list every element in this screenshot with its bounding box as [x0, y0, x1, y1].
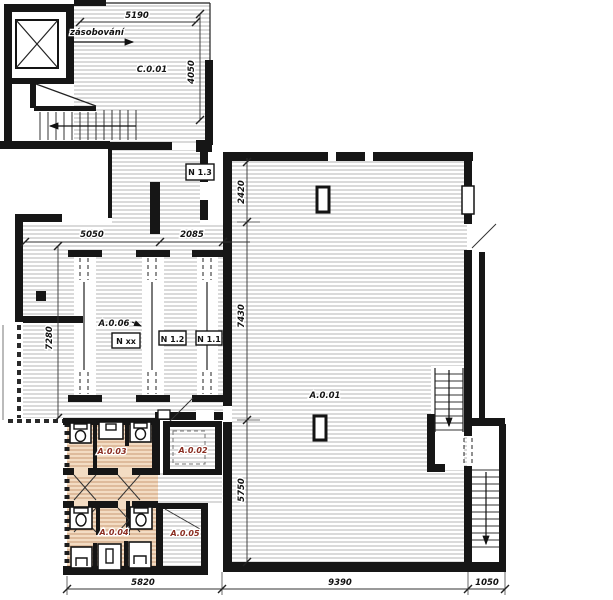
room-label-a006: A.0.06 — [98, 319, 130, 329]
dim-4050: 4050 — [187, 60, 197, 85]
floor-plan: 5190 4050 5050 2085 7280 2420 7430 5750 … — [0, 0, 613, 600]
wall-niche — [462, 186, 474, 214]
room-label-c001: C.0.01 — [137, 65, 167, 75]
dim-2420: 2420 — [237, 180, 247, 204]
dim-1050: 1050 — [475, 578, 499, 588]
room-label-a003: A.0.03 — [96, 447, 127, 456]
dim-5190: 5190 — [125, 11, 149, 21]
supply-arrow-label: zásobování — [69, 28, 125, 38]
dim-7280: 7280 — [45, 326, 55, 350]
dim-7430: 7430 — [237, 304, 247, 328]
column — [314, 416, 326, 440]
column — [317, 187, 329, 212]
room-label-a004: A.0.04 — [98, 528, 129, 537]
corridor-floor — [158, 473, 222, 503]
urinal-icon — [98, 544, 121, 570]
toilet-icon — [130, 507, 152, 529]
partition-tracks — [68, 250, 223, 402]
door-label-n13: N 1.3 — [188, 168, 212, 177]
door-label-nxx: N xx — [116, 337, 137, 346]
sink-icon — [129, 542, 151, 568]
toilet-icon — [70, 507, 92, 529]
sink-icon — [71, 547, 92, 568]
room-a001-floor — [228, 160, 467, 564]
door-label-n12: N 1.2 — [161, 335, 185, 344]
room-label-a005: A.0.05 — [169, 529, 200, 538]
dim-9390: 9390 — [328, 578, 352, 588]
door-leaf — [158, 410, 170, 419]
dim-5050: 5050 — [80, 230, 104, 240]
dim-5750: 5750 — [237, 478, 247, 502]
wall-switch-box — [36, 291, 46, 301]
stair-notch — [431, 366, 464, 470]
floor-plan-canvas: 5190 4050 5050 2085 7280 2420 7430 5750 … — [0, 0, 613, 600]
dim-2085: 2085 — [180, 230, 204, 240]
room-label-a002: A.0.02 — [177, 446, 208, 455]
elevator-icon — [16, 20, 58, 68]
room-label-a001: A.0.01 — [309, 391, 341, 401]
door-label-n11: N 1.1 — [197, 335, 221, 344]
sink-icon — [99, 422, 123, 439]
toilet-icon — [130, 422, 151, 442]
dim-5820: 5820 — [131, 578, 155, 588]
toilet-icon — [70, 423, 91, 443]
